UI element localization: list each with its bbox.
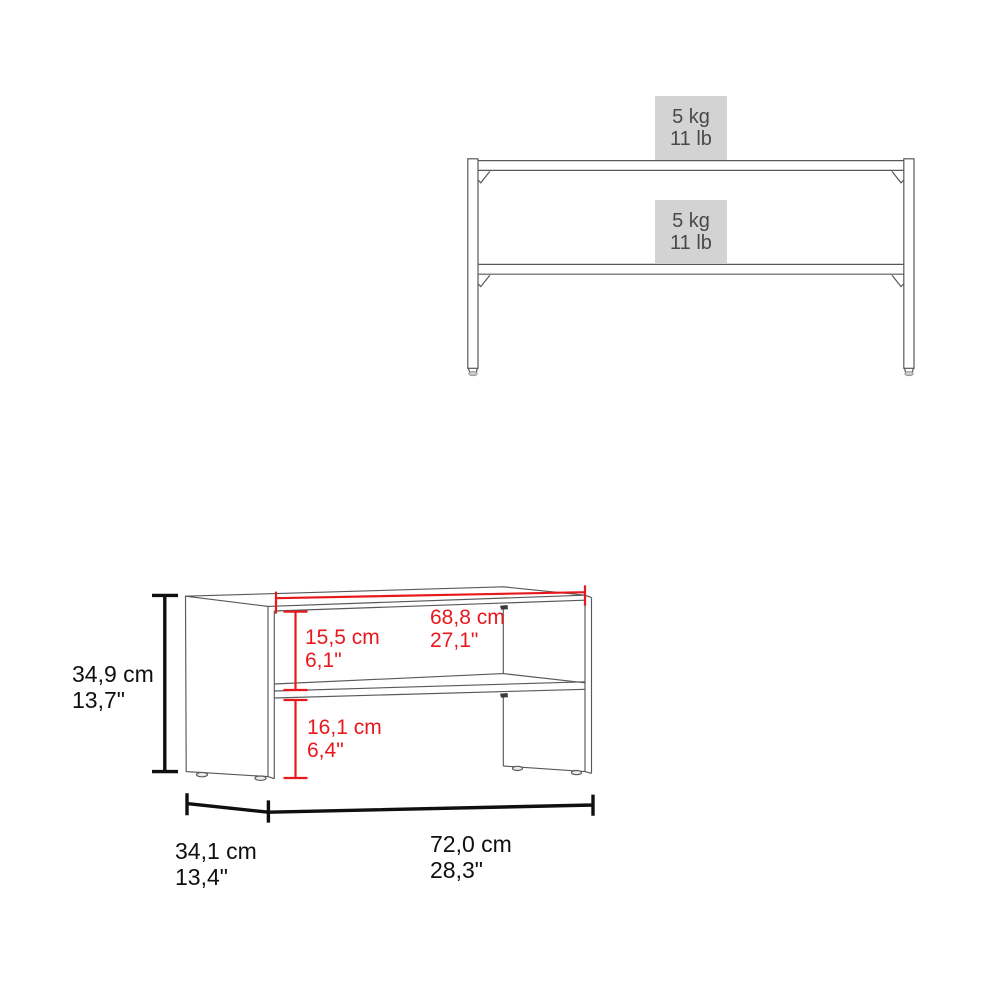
lower-compartment-dimension-label: 16,1 cm 6,4" — [307, 716, 382, 762]
lower-compartment-imperial-text: 6,4" — [307, 739, 382, 762]
upper-compartment-imperial-text: 6,1" — [305, 649, 380, 672]
width-dimension-label: 72,0 cm 28,3" — [430, 831, 512, 883]
foot-front-left — [197, 772, 208, 776]
height-metric-text: 34,9 cm — [72, 661, 154, 687]
shelf-front-top-edge — [274, 682, 585, 691]
perspective-linework — [186, 587, 592, 781]
shelf-front-bottom-edge — [274, 689, 585, 698]
depth-imperial-text: 13,4" — [175, 864, 257, 890]
width-imperial-text: 28,3" — [430, 857, 512, 883]
foot-front-right — [255, 776, 266, 780]
lower-compartment-metric-text: 16,1 cm — [307, 716, 382, 739]
shelf-back-edge — [274, 674, 585, 684]
product-dimension-sheet: 5 kg 11 lb 5 kg 11 lb — [0, 0, 1000, 1000]
width-metric-text: 72,0 cm — [430, 831, 512, 857]
lower-compartment-dim-line — [284, 700, 308, 778]
connector-clip-lower — [500, 693, 508, 698]
top-slab-back-edge — [186, 587, 586, 596]
inner-width-imperial-text: 27,1" — [430, 629, 505, 652]
foot-back-left — [513, 766, 523, 770]
height-dim-line — [152, 595, 178, 771]
foot-back-right — [572, 771, 582, 775]
width-dim-line — [268, 795, 593, 816]
right-side-panel — [585, 595, 592, 773]
upper-compartment-metric-text: 15,5 cm — [305, 626, 380, 649]
left-panel-inner-edge — [268, 611, 274, 779]
depth-dim-line — [187, 793, 268, 822]
depth-metric-text: 34,1 cm — [175, 838, 257, 864]
upper-compartment-dim-line — [284, 612, 308, 690]
height-dimension-label: 34,9 cm 13,7" — [72, 661, 154, 713]
depth-dimension-label: 34,1 cm 13,4" — [175, 838, 257, 890]
upper-compartment-dimension-label: 15,5 cm 6,1" — [305, 626, 380, 672]
inner-width-metric-text: 68,8 cm — [430, 606, 505, 629]
inner-width-dimension-label: 68,8 cm 27,1" — [430, 606, 505, 652]
left-side-panel — [186, 596, 269, 776]
height-imperial-text: 13,7" — [72, 687, 154, 713]
